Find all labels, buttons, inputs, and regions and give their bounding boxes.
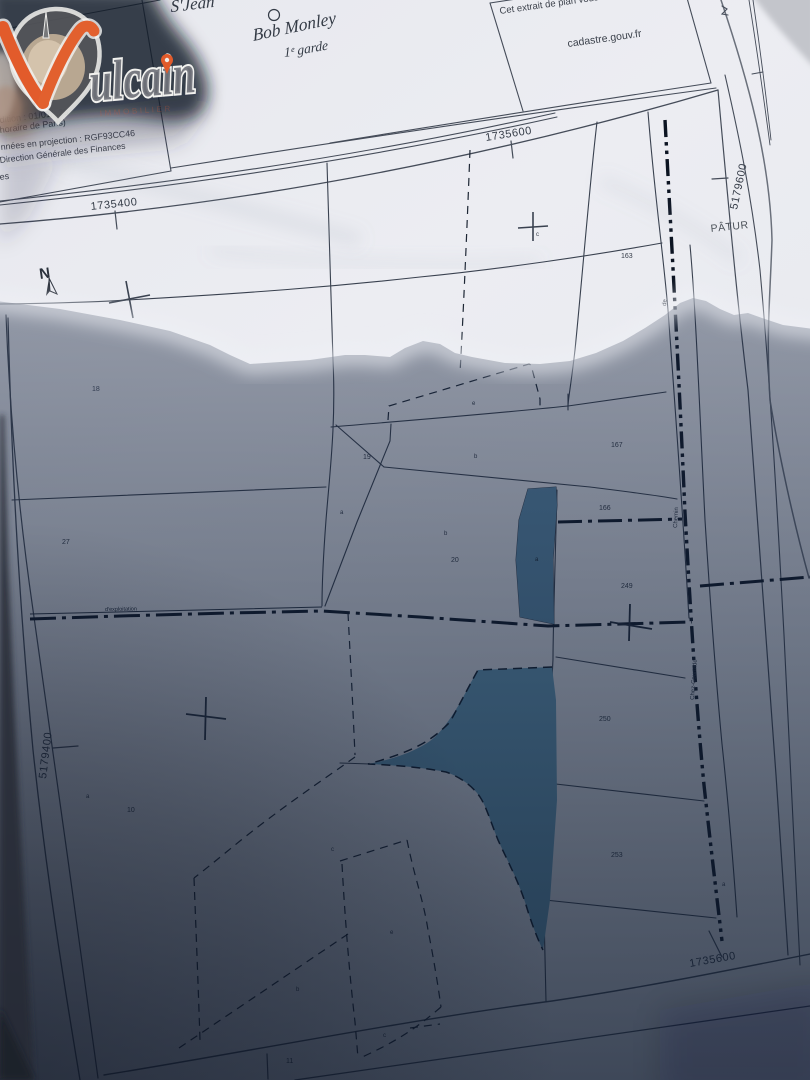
svg-text:c: c: [536, 232, 539, 238]
svg-text:ulcain: ulcain: [87, 43, 198, 114]
svg-text:163: 163: [621, 253, 633, 260]
